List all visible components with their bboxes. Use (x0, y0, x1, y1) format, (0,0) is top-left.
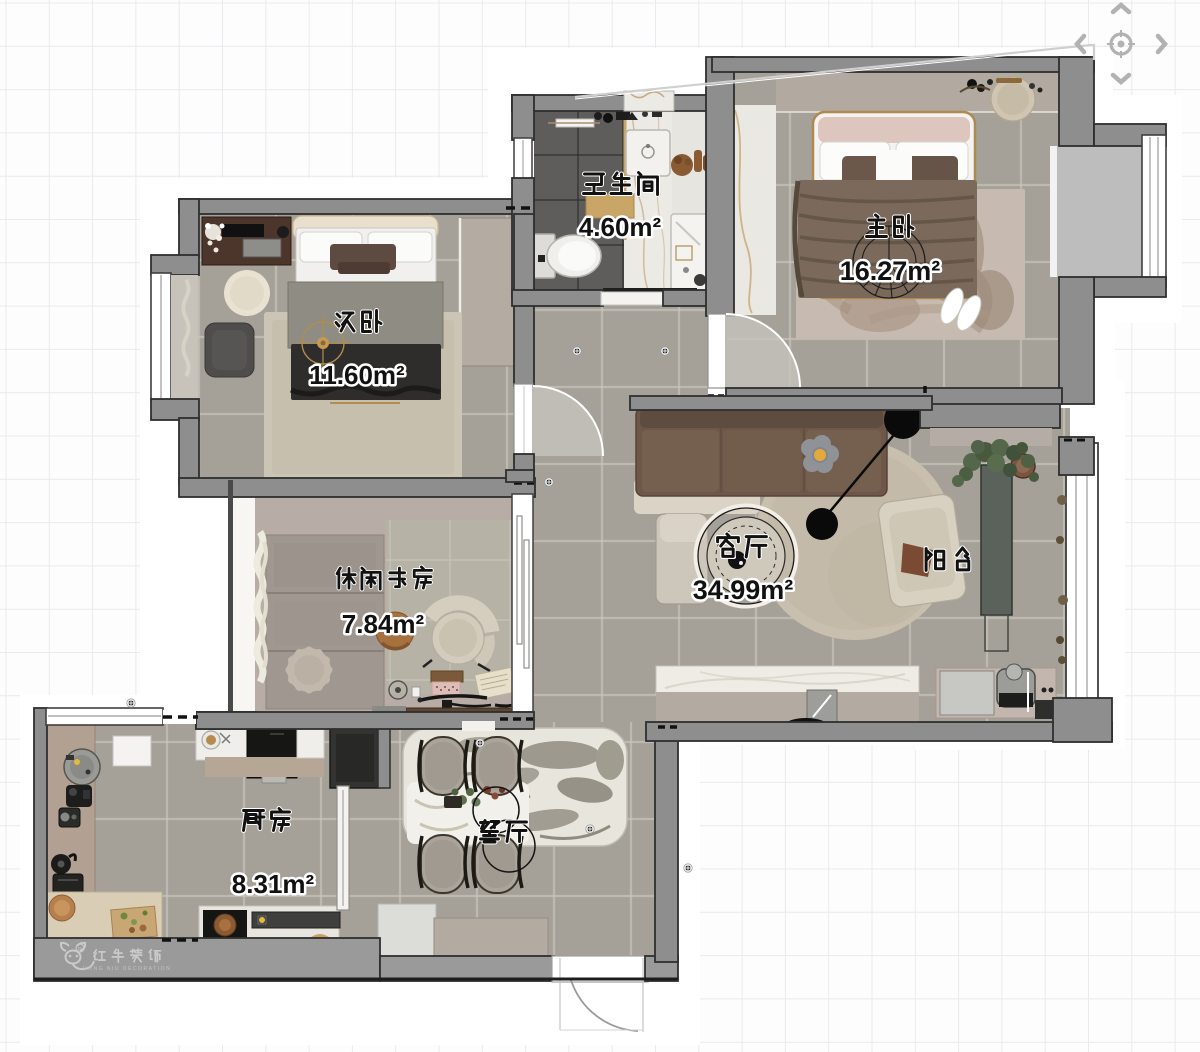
svg-text:11.60m²: 11.60m² (309, 360, 405, 390)
svg-text:R: R (78, 947, 82, 953)
svg-text:HONG NIU DECORATION: HONG NIU DECORATION (83, 966, 171, 972)
svg-text:34.99m²: 34.99m² (693, 575, 794, 605)
svg-text:16.27m²: 16.27m² (840, 256, 941, 286)
svg-text:4.60m²: 4.60m² (579, 212, 662, 242)
svg-text:7.84m²: 7.84m² (342, 609, 425, 639)
svg-text:8.31m²: 8.31m² (232, 869, 315, 899)
